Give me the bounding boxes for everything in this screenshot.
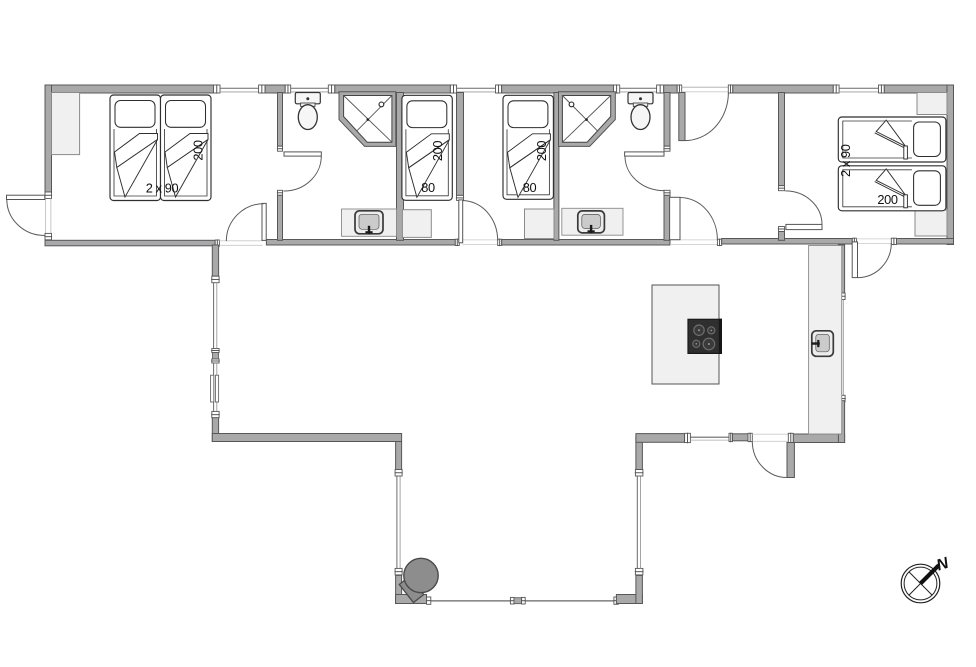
svg-text:200: 200 xyxy=(430,141,445,161)
svg-text:200: 200 xyxy=(191,140,206,160)
svg-text:200: 200 xyxy=(877,192,897,207)
svg-text:80: 80 xyxy=(421,180,435,195)
svg-text:80: 80 xyxy=(523,180,537,195)
svg-text:2 x 90: 2 x 90 xyxy=(146,181,179,196)
svg-text:200: 200 xyxy=(534,141,549,161)
svg-text:2 x 90: 2 x 90 xyxy=(838,144,853,177)
